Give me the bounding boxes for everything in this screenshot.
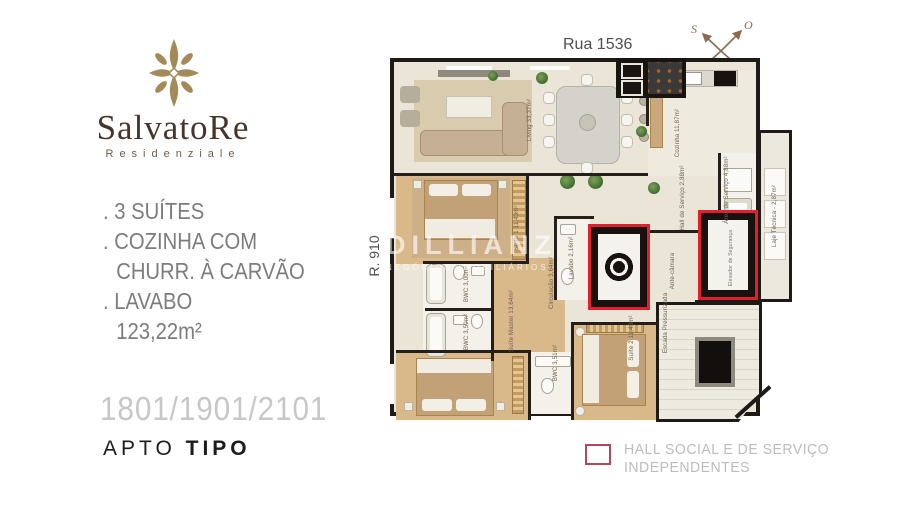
room-label: Cozinha 11,87m²	[675, 109, 681, 157]
feature-list: . 3 SUÍTES . COZINHA COM CHURR. À CARVÃO…	[103, 196, 305, 346]
room-label: Living 33,37m²	[527, 99, 533, 141]
bed-sheet	[417, 359, 491, 373]
tv-console	[438, 70, 510, 77]
dining-centerpiece	[579, 114, 596, 131]
dining-chair	[543, 114, 555, 126]
wall	[573, 322, 658, 325]
room-label: Suíte 2 11,43m²	[629, 315, 635, 360]
plant-icon	[536, 72, 548, 84]
feature-line: . LAVABO	[103, 286, 305, 316]
wall	[423, 261, 528, 264]
bathtub	[426, 264, 446, 304]
feature-line: . COZINHA COM	[103, 226, 305, 256]
pillow	[627, 371, 639, 398]
room-label: Ante-câmara	[670, 253, 676, 290]
wall	[491, 261, 494, 361]
tipo-label: TIPO	[186, 437, 251, 460]
plant-icon	[648, 182, 660, 194]
wall	[394, 173, 648, 176]
nightstand	[496, 402, 505, 411]
apto-label: APTO	[103, 437, 176, 460]
grill-oven-door	[621, 63, 643, 79]
bathroom-sink	[471, 266, 485, 276]
wall	[526, 176, 529, 264]
pillow	[429, 184, 458, 196]
sofa-chaise	[502, 102, 528, 156]
apartment-units: 1801/1901/2101	[100, 390, 327, 428]
room-label: Área de Serviço 4,88m²	[724, 156, 730, 223]
legend-text: HALL SOCIAL E DE SERVIÇO INDEPENDENTES	[624, 441, 829, 477]
dining-chair	[621, 114, 633, 126]
stair-core	[695, 337, 735, 387]
brand-ornament-icon	[143, 38, 205, 108]
brand-name: SalvatoRe	[88, 108, 258, 148]
street-label-left: R. 910	[366, 226, 382, 286]
pillow	[456, 399, 486, 411]
room-label: BWC 3,51m²	[553, 345, 559, 381]
toilet	[471, 314, 483, 329]
window	[588, 420, 632, 424]
legend-line: INDEPENDENTES	[624, 459, 829, 477]
window	[530, 66, 570, 70]
street-label-top: Rua 1536	[563, 36, 632, 54]
plant-icon	[588, 174, 603, 189]
wall	[571, 322, 574, 420]
grill-oven-door	[621, 80, 643, 96]
plant-icon	[636, 126, 647, 137]
compass-s: S	[691, 22, 697, 36]
legend-line: HALL SOCIAL E DE SERVIÇO	[624, 441, 829, 459]
master-bed	[416, 358, 494, 416]
wall	[425, 308, 493, 311]
dining-chair	[581, 74, 593, 86]
elevator-floor-motif	[602, 250, 636, 284]
room-label: Suíte 1 11,43m²	[514, 205, 520, 250]
nightstand	[404, 402, 413, 411]
dining-chair	[621, 136, 633, 148]
plant-icon	[560, 174, 575, 189]
room-label: BWC 3,50m²	[464, 314, 470, 350]
wall	[554, 216, 594, 219]
lavabo-sink	[560, 224, 576, 235]
charcoal-grill	[616, 58, 686, 98]
room-label: Laje Técnica - 2,87m²	[772, 185, 778, 247]
window	[390, 198, 394, 238]
plant-icon	[488, 71, 498, 81]
dining-chair	[543, 92, 555, 104]
legend-red-square-icon	[585, 444, 611, 465]
grill-rack	[648, 62, 682, 94]
legend: HALL SOCIAL E DE SERVIÇO INDEPENDENTES	[585, 441, 842, 477]
suite1-bed	[424, 180, 498, 240]
bar-counter	[650, 90, 663, 148]
master-closet	[512, 356, 524, 414]
nightstand	[413, 180, 422, 189]
room-label: Lavabo 2,16m²	[569, 237, 575, 280]
brand-subtitle: Residenziale	[88, 148, 258, 160]
page: SalvatoRe Residenziale . 3 SUÍTES . COZI…	[0, 0, 900, 505]
wall	[528, 350, 531, 420]
window	[390, 364, 394, 404]
armchair	[400, 110, 420, 127]
dining-chair	[543, 136, 555, 148]
feature-line: CHURR. À CARVÃO	[103, 256, 305, 286]
social-elevator	[588, 224, 650, 310]
stove	[714, 71, 736, 86]
room-label: Circulação 3,64m²	[549, 257, 555, 309]
floor-plan: Elevador de Segurança Living 33,37m² Coz…	[390, 58, 805, 438]
armchair	[400, 86, 420, 103]
pillow	[462, 184, 491, 196]
coffee-table	[446, 96, 492, 118]
feature-line: . 3 SUÍTES	[103, 196, 305, 226]
pillow	[422, 399, 452, 411]
bed-sheet	[425, 219, 495, 238]
bed-sheet	[583, 335, 599, 403]
nightstand	[498, 180, 507, 189]
suite2-bed	[582, 334, 646, 406]
room-label: Hall de Serviço 2,88m²	[680, 165, 686, 230]
room-label: Suíte Master 13,64m²	[509, 290, 515, 352]
room-label: Escada Pressurizada	[663, 293, 669, 354]
room-label: Elevador de Segurança	[728, 230, 734, 286]
nightstand	[575, 406, 585, 416]
compass-o: O	[744, 18, 753, 32]
room-label: BWC 3,00m²	[464, 266, 470, 302]
apartment-type-label: APTO TIPO	[103, 437, 251, 461]
apartment-area: 123,22m²	[103, 316, 305, 346]
window	[446, 66, 492, 70]
